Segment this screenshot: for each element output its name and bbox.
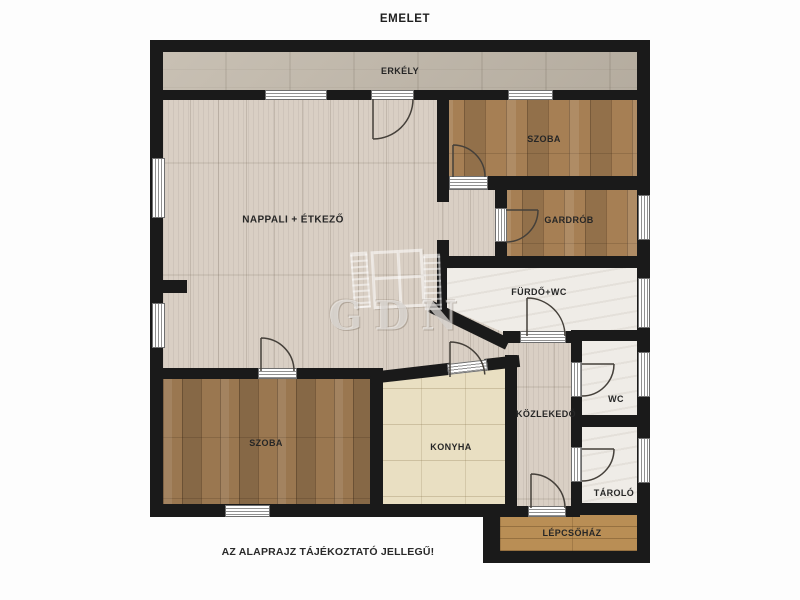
window-wc-right [638, 352, 650, 397]
room-label-stairwell: LÉPCSŐHÁZ [542, 528, 601, 538]
room-label-bathroom: FÜRDŐ+WC [511, 287, 566, 297]
room-label-wardrobe: GARDRÓB [544, 215, 593, 225]
door-sill-storage [571, 447, 582, 482]
wall-bathroom-left [437, 268, 447, 308]
door-sill-bathroom [520, 331, 566, 343]
room-label-bedroom-upper: SZOBA [527, 134, 561, 144]
room-label-bedroom-lower: SZOBA [249, 438, 283, 448]
wall-hallway-left [505, 355, 517, 507]
wall-outer-top [150, 40, 650, 52]
door-sill-wc [571, 362, 582, 397]
window-living-left-1 [152, 158, 165, 218]
room-label-living-dining: NAPPALI + ÉTKEZŐ [242, 215, 344, 226]
room-label-balcony: ERKÉLY [381, 66, 419, 76]
wall-storage-bottom [571, 503, 650, 515]
wall-stairwell-top-left [500, 506, 528, 517]
door-sill-stairwell [528, 506, 566, 517]
wall-outer-left [150, 40, 163, 517]
window-bathroom-right [638, 278, 650, 328]
wall-bathroom-top [437, 256, 638, 268]
window-living-left-2 [152, 303, 165, 348]
wall-living-stub [163, 280, 187, 293]
door-sill-wardrobe [495, 208, 507, 242]
floor-title: EMELET [380, 13, 430, 25]
wall-outer-bottom [150, 504, 517, 517]
window-wardrobe-right [638, 195, 650, 240]
room-label-storage: TÁROLÓ [594, 488, 634, 498]
wall-wc-storage-divider [571, 415, 638, 427]
floor-plan-page: EMELET [0, 0, 800, 600]
wall-bedroom-kitchen-divider [370, 368, 383, 505]
wall-stairwell-bottom [483, 551, 650, 563]
door-sill-bedroom-upper [449, 176, 488, 190]
room-label-wc: WC [608, 394, 624, 404]
window-balcony-living [265, 90, 327, 100]
room-label-kitchen: KONYHA [430, 442, 471, 452]
window-bedroom-lower-bottom [225, 505, 270, 517]
door-sill-bedroom-lower [258, 368, 297, 379]
disclaimer-text: AZ ALAPRAJZ TÁJÉKOZTATÓ JELLEGŰ! [222, 546, 435, 558]
window-balcony-bedroom [508, 90, 553, 100]
floor-wc [580, 339, 638, 417]
window-storage-right [638, 438, 650, 483]
door-sill-balcony [371, 90, 414, 100]
room-label-hallway: KÖZLEKEDŐ [516, 409, 576, 419]
